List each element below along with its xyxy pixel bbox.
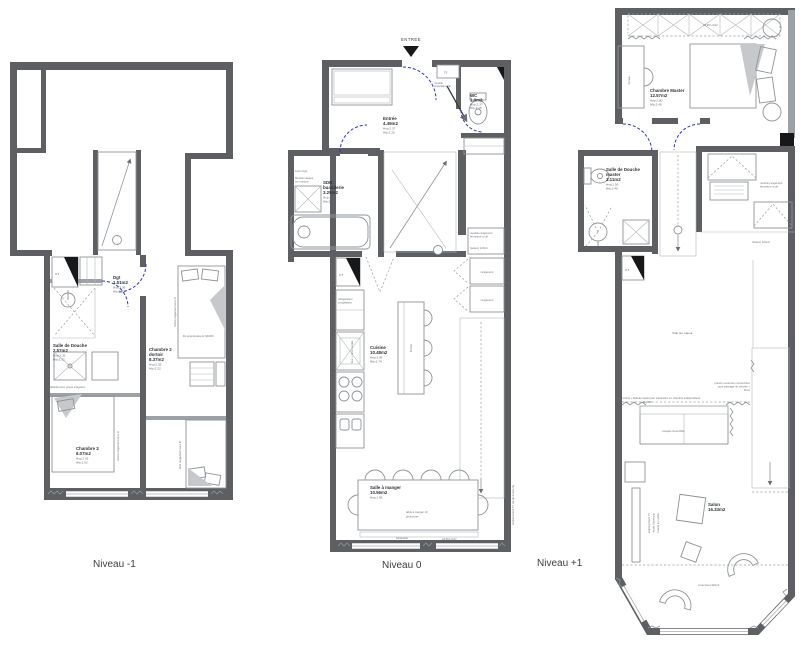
room-dgt-area: 1.51m2	[113, 280, 128, 285]
room-labels-minus-1: Dgt 1.51m2 Hsp:2.36 Hfp:2.22 Salle de Do…	[53, 275, 172, 465]
locked-note-p1-2: fermeture à clé	[760, 185, 778, 189]
floor-plan-drawing: CT tablette avec prises intégrées t	[0, 0, 800, 647]
table-note-1: table à manger 10	[406, 510, 428, 514]
bed-bottom-right-minus-1: tiroir rangement sous lit	[178, 420, 226, 488]
room-ch3-area: 6.07m2	[76, 451, 91, 456]
hsp-low-note: Hsp:96	[643, 400, 652, 404]
shelf-note: tablette avec prises intégrées	[50, 385, 86, 389]
ct-label-0: CT	[339, 273, 343, 277]
tv-note-p1-2: étude Samsung	[652, 513, 656, 532]
bunk-note: lits superposés 2x 90/200	[183, 334, 214, 338]
room-sam-hsp: Hsp:1.98	[370, 496, 383, 500]
room-entree-hfp: Hfp:2.25	[383, 131, 395, 135]
walls-niveau-plus-1	[578, 8, 795, 632]
kitchen: CT réfrigérateur congélateur four + micr…	[336, 258, 432, 448]
entry-closet	[332, 69, 392, 105]
room-entree-area: 4.49m2	[383, 121, 398, 126]
room-douche-area: 2.57m2	[53, 348, 68, 353]
closet-dim-note: All.95 H.102	[703, 23, 718, 27]
desk-note: bureau	[627, 75, 631, 84]
room-douche-hfp: Hfp:2.32	[53, 358, 65, 362]
room-sam-area: 10.56m2	[370, 490, 388, 495]
sofa-note: canapé convertible	[662, 429, 685, 433]
room-cuisine-hfp: Hfp:3.74	[370, 360, 382, 364]
level-label-minus-1: Niveau -1	[93, 559, 136, 570]
bench-dim: All.56 H.127	[442, 537, 457, 541]
room-sdb-hfp: Hfp:2.27	[323, 200, 335, 204]
storage-wall-0: meuble rangement fermeture à clé hauteur…	[454, 228, 504, 312]
table-note-2: personnes	[406, 515, 419, 519]
entry-marker: ENTREE	[401, 37, 421, 57]
locked-note-1: meuble rangement	[470, 231, 493, 235]
ct-label-plus-1: CT	[625, 268, 629, 272]
pass-note-2: pour passage du meuble +	[718, 385, 750, 389]
room-ch2-hfp: Hfp:2.22	[149, 367, 161, 371]
entry-arrow-icon	[403, 46, 419, 57]
height-note-p1: hauteur 120cm	[752, 240, 771, 244]
staircase-0-up	[460, 318, 504, 498]
room-dgt-hfp: Hfp:2.22	[113, 290, 125, 294]
vanity-note-2: sur mesure	[295, 180, 309, 184]
tv-note-0: emplacement TV étude Samsung	[511, 485, 515, 525]
drawer-note-bed: tiroir rangement sous lit	[178, 441, 182, 469]
entry-label: ENTREE	[401, 37, 421, 42]
room-sdb-area: 3.29m2	[323, 190, 338, 195]
staircase-plus-1-low	[751, 348, 789, 492]
island-note: îlot bar	[409, 344, 413, 353]
level-label-0: Niveau 0	[382, 560, 422, 571]
floor-plan-sheet: CT tablette avec prises intégrées t	[0, 0, 800, 647]
dining-area: Salle à manger 10.56m2 Hsp:1.98 table à …	[348, 470, 515, 541]
ceiling-note: zone faux plafond	[698, 583, 720, 587]
wardrobe-plus-1: meuble rangement fermeture à clé hauteur…	[708, 154, 792, 244]
te-label: TE	[444, 71, 448, 75]
tv-note-p1-1: emplacement TV	[647, 513, 651, 533]
shower-room-minus-1: tablette avec prises intégrées	[50, 288, 118, 389]
plan-niveau-minus-1: CT tablette avec prises intégrées t	[10, 62, 233, 570]
bench-note: banquette	[396, 536, 408, 540]
room-salon-area: 16.33m2	[708, 507, 726, 512]
staircase-0-down	[384, 152, 456, 255]
fridge-note-2: congélateur	[338, 301, 352, 305]
room-cuisine-area: 10.48m2	[370, 350, 388, 355]
pivot-note-2: séparation TE	[434, 84, 451, 88]
void-label: Vide sur séjour	[672, 331, 693, 335]
plan-niveau-plus-1: All.95 H.102 bureau Chambre Master 12.57…	[537, 8, 795, 632]
living-room: canapé convertible emplacement TV étude …	[622, 406, 788, 610]
void-over-living: Vide sur séjour prévoir ouverture mur/ve…	[621, 260, 753, 405]
tv-note-p1-3: Frame sur socle	[656, 513, 660, 533]
staircase-plus-1-mid	[660, 152, 696, 256]
drawer-note-ch3: tiroirs rangement sous lit	[116, 431, 120, 461]
height-note-0: hauteur 120cm	[470, 246, 489, 250]
curtain-note: verrière + Rideau épais pour séparation …	[621, 396, 701, 400]
plan-niveau-0: ENTREE	[288, 37, 515, 571]
locked-note-2: fermeture à clé	[470, 235, 488, 239]
wc-area: TE meuble séparation TE	[434, 65, 504, 154]
pass-note-3: 8mm	[744, 388, 751, 392]
storage-label-1: rangement	[481, 270, 494, 274]
room-master-area: 12.57m2	[650, 93, 668, 98]
room-ch3-hfp: Hfp:2.02	[76, 461, 88, 465]
locked-note-p1-1: meuble rangement	[760, 181, 783, 185]
vanity-note-1: Meuble vasque	[295, 176, 314, 180]
bedroom2-minus-1: tiroirs rangement sous lit lits superpos…	[173, 266, 225, 386]
room-sdm-area: 3.11m2	[606, 177, 621, 182]
room-wc-hfp: Hfp:2.25	[470, 106, 482, 110]
room-master-hfp: Hfp:2.40	[650, 103, 662, 107]
room-sdm-hfp: Hfp:2.45	[606, 187, 618, 191]
washer-note: Lave linge	[295, 169, 308, 173]
drawer-note-ch2: tiroirs rangement sous lit	[173, 297, 177, 327]
level-label-plus-1: Niveau +1	[537, 558, 583, 569]
fridge-note-1: réfrigérateur	[338, 297, 353, 301]
master-bedroom: All.95 H.102 bureau Chambre Master 12.57…	[618, 14, 781, 152]
ct-label: CT	[55, 272, 59, 276]
walls-niveau-0	[288, 60, 511, 552]
pass-note-1: prévoir ouverture mur/verrière	[714, 381, 750, 385]
storage-label-2: rangement	[481, 298, 494, 302]
staircase-minus-1	[98, 152, 136, 250]
room-ch2-area: 8.37m2	[149, 357, 164, 362]
oven-note: four + micro-ondes	[350, 340, 354, 363]
